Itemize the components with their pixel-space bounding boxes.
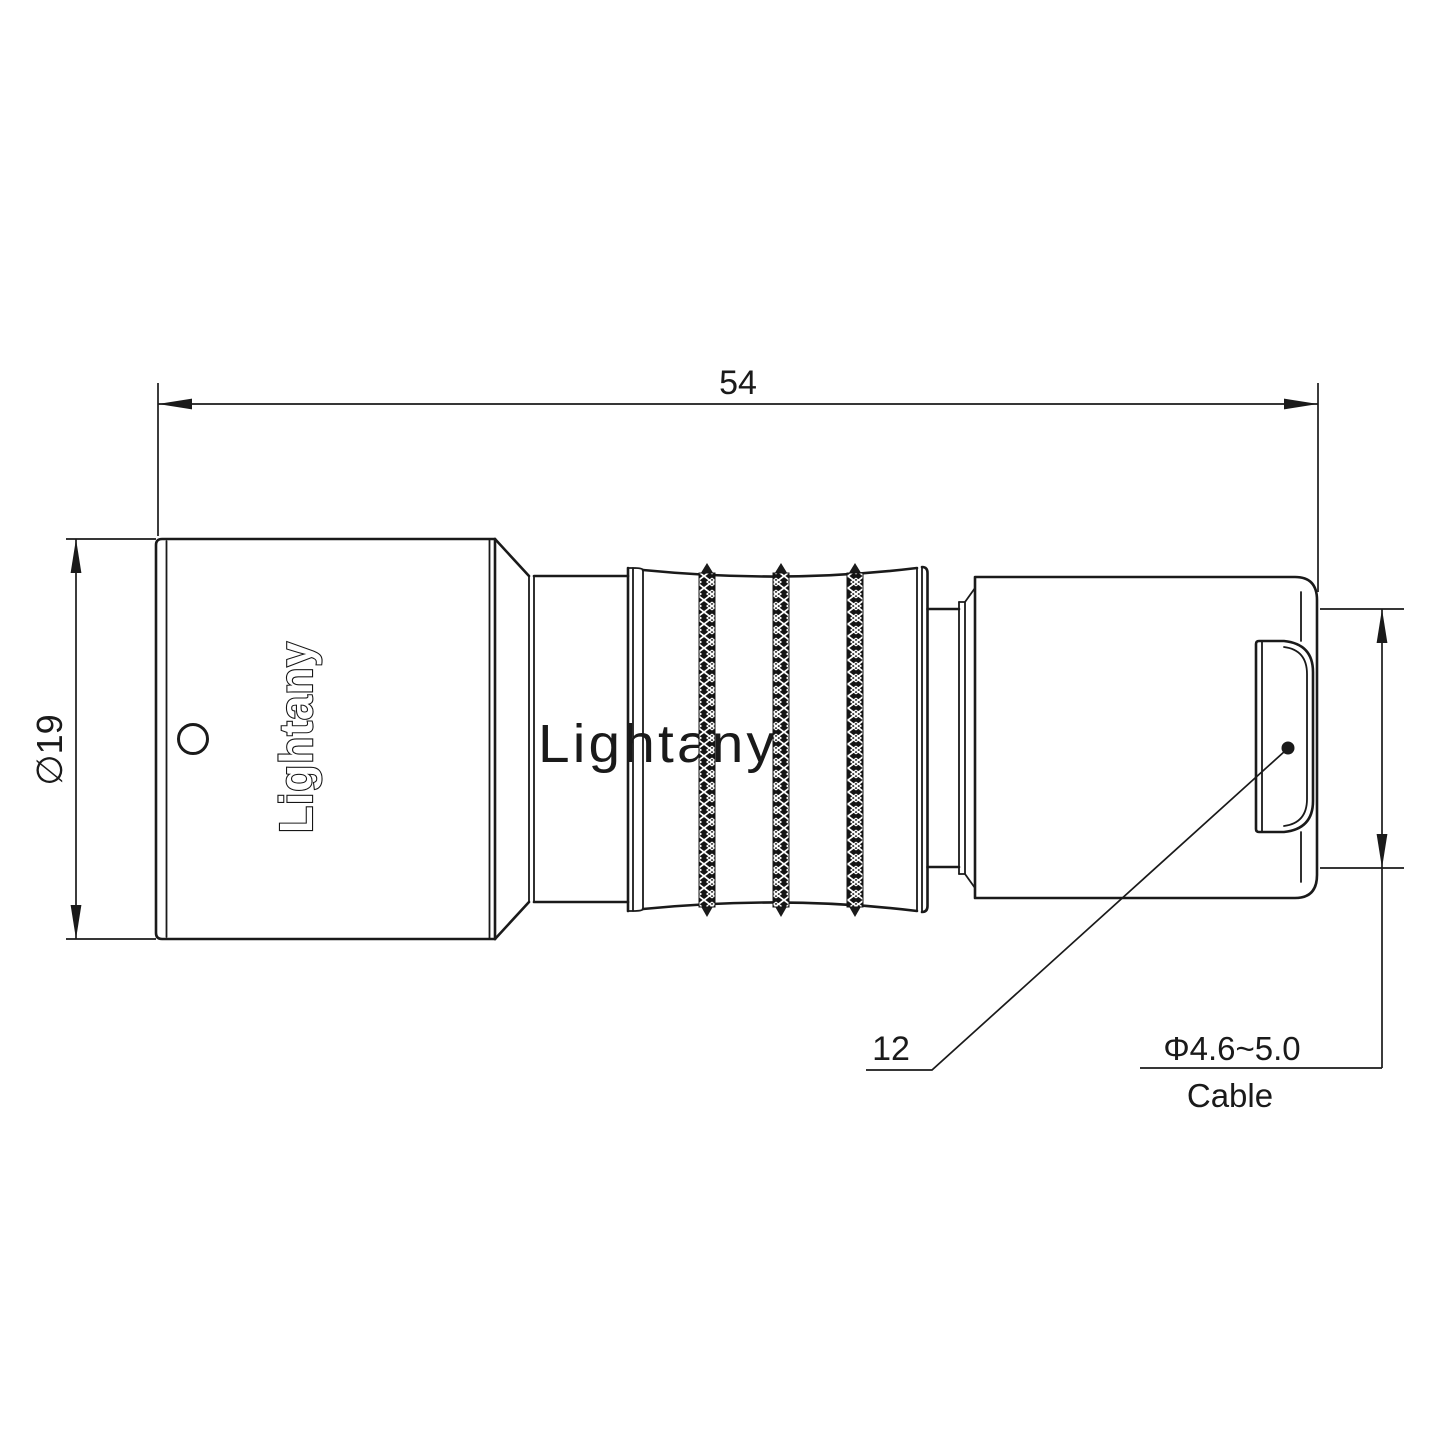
overall-length-label: 54: [719, 364, 757, 402]
knurl-band: [699, 563, 715, 917]
chamfer-bottom: [495, 902, 529, 939]
band-texture: [699, 573, 715, 907]
shell-diameter-label: ∅19: [29, 714, 70, 785]
arrowhead-down-icon: [71, 905, 82, 939]
arrowhead-right-icon: [1284, 399, 1318, 410]
ridge-chamfers: [959, 588, 975, 888]
chamfer-top: [495, 539, 529, 576]
left-cap-top-join: [628, 568, 643, 570]
rear-neck: [928, 588, 976, 888]
connector-technical-drawing: Lightany 54 ∅19 Lightany: [0, 0, 1440, 1440]
cable-bushing: [1256, 641, 1313, 832]
arrowhead-up-icon: [1377, 609, 1388, 643]
technical-drawing-canvas: Lightany 54 ∅19 Lightany: [0, 0, 1440, 1440]
bushing-outline: [1256, 641, 1313, 832]
cable-word-label: Cable: [1187, 1077, 1273, 1114]
band-texture: [773, 573, 789, 907]
arrowhead-up-icon: [71, 539, 82, 573]
body-logo-text: Lightany: [270, 641, 322, 833]
keying-hole: [179, 725, 208, 754]
cable-nut: [975, 577, 1317, 898]
band-texture: [847, 573, 863, 907]
knurl-band: [773, 563, 789, 917]
arrowhead-down-icon: [1377, 834, 1388, 868]
arrowhead-left-icon: [158, 399, 192, 410]
watermark-text: Lightany: [538, 714, 778, 774]
front-shell: Lightany: [156, 539, 495, 939]
dimension-shell-diameter: ∅19: [29, 539, 156, 939]
cable-range-label: Φ4.6~5.0: [1163, 1030, 1300, 1067]
rear-reference-label: 12: [872, 1030, 910, 1068]
left-cap-bottom-join: [628, 909, 643, 911]
knurl-band: [847, 563, 863, 917]
